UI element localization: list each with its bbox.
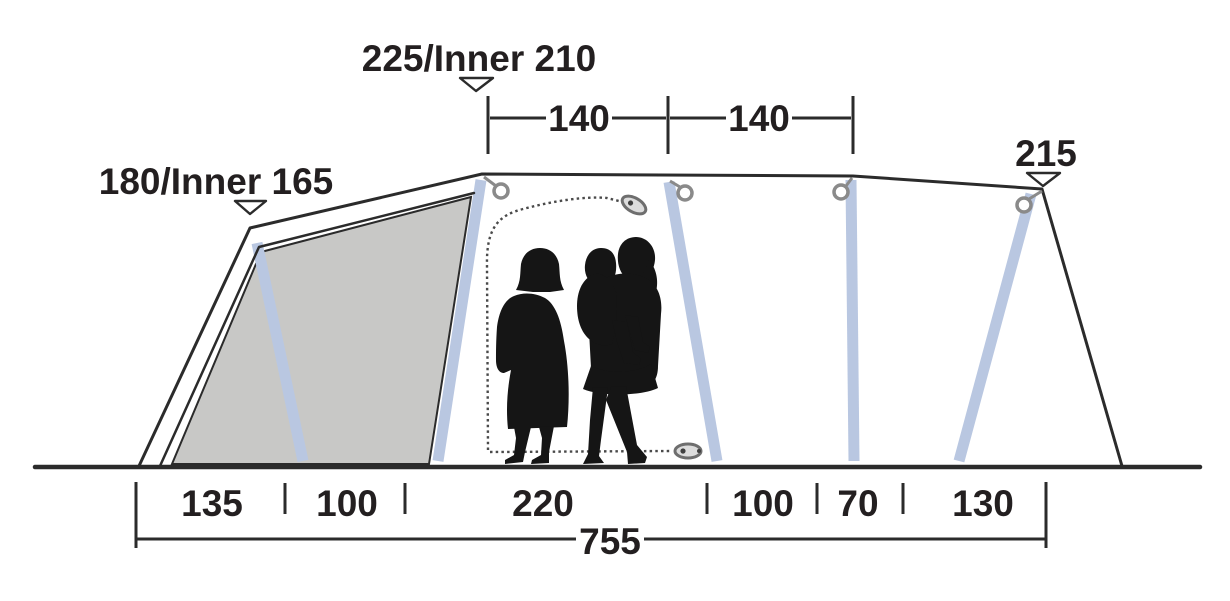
diagram-canvas: 140 140 180/Inner 165 225/Inner 210 215 … xyxy=(0,0,1230,601)
height-label-left: 180/Inner 165 xyxy=(99,161,333,202)
segment-label-4: 100 xyxy=(732,483,794,524)
total-width-dimension: 755 xyxy=(137,521,1045,562)
bedroom-panel xyxy=(172,197,471,464)
adult-with-child-silhouette xyxy=(577,237,661,464)
air-pole-4 xyxy=(851,180,854,461)
air-pole-5 xyxy=(959,194,1031,461)
air-pole-3 xyxy=(669,182,717,461)
segment-label-5: 70 xyxy=(837,483,878,524)
guy-ring-icon xyxy=(678,186,692,200)
adult-silhouette-left xyxy=(496,248,569,464)
height-label-center: 225/Inner 210 xyxy=(362,38,596,79)
total-width-label: 755 xyxy=(579,521,641,562)
segment-label-1: 135 xyxy=(181,483,243,524)
child-body xyxy=(577,274,617,346)
segment-label-6: 130 xyxy=(952,483,1014,524)
top-width-label-1: 140 xyxy=(548,98,610,139)
top-width-dimension: 140 140 xyxy=(488,96,853,154)
zipper-pull-icon xyxy=(675,444,701,458)
segment-label-2: 100 xyxy=(316,483,378,524)
top-width-label-2: 140 xyxy=(728,98,790,139)
tent-dimension-diagram: 140 140 180/Inner 165 225/Inner 210 215 … xyxy=(0,0,1230,601)
guy-ring-icon xyxy=(494,184,508,198)
guy-ring-icon xyxy=(1017,198,1031,212)
arrow-down-marker xyxy=(1027,173,1060,186)
zipper-pull-icon xyxy=(619,192,649,217)
guy-ring-icon xyxy=(834,185,848,199)
segment-label-3: 220 xyxy=(512,483,574,524)
height-label-right: 215 xyxy=(1015,133,1077,174)
arrow-down-marker xyxy=(235,201,266,214)
arrow-down-marker xyxy=(460,78,493,91)
